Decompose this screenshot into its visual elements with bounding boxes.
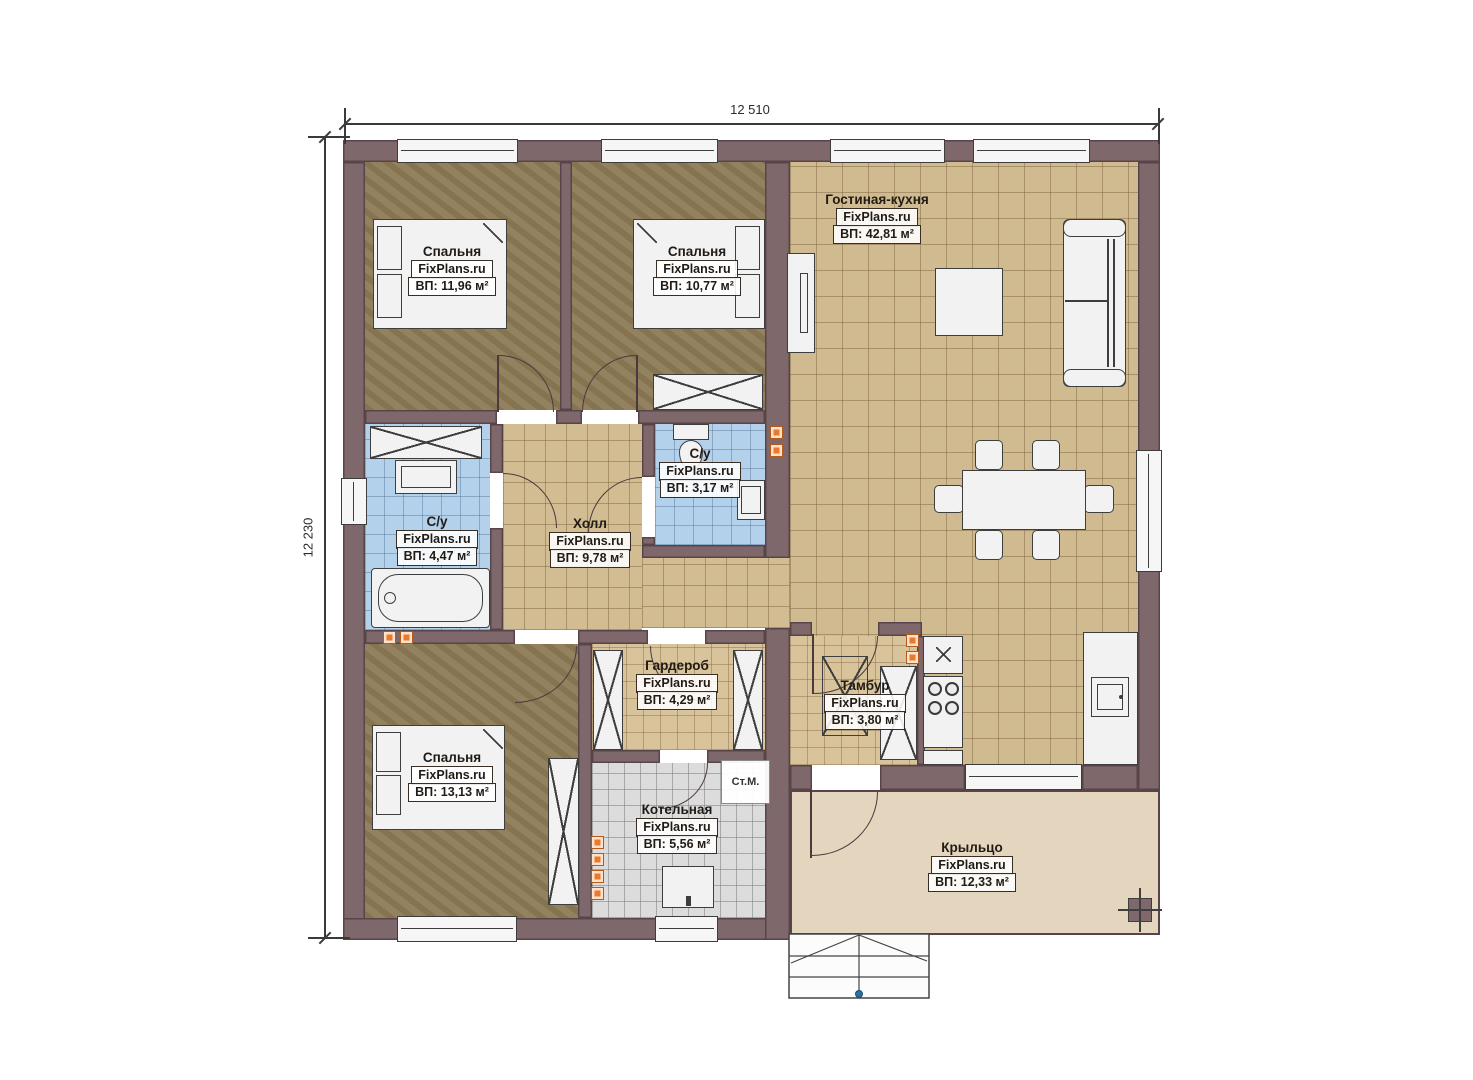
- room-area: ВП: 13,13 м²: [408, 783, 496, 802]
- watermark: FixPlans.ru: [411, 260, 492, 279]
- room-label-wardrobe: Гардероб FixPlans.ru ВП: 4,29 м²: [617, 658, 737, 710]
- washing-machine-text: Ст.М.: [732, 776, 760, 788]
- window: [830, 139, 945, 163]
- wall-segment: [560, 162, 572, 410]
- bed-fold-corner: [637, 223, 657, 243]
- window: [973, 139, 1090, 163]
- room-area: ВП: 3,17 м²: [660, 479, 741, 498]
- vent: [400, 631, 413, 644]
- room-label-bedroom-1: Спальня FixPlans.ru ВП: 11,96 м²: [392, 244, 512, 296]
- stairs-drawing: [788, 933, 932, 1003]
- dimension-extension: [308, 136, 350, 138]
- dimension-line: [324, 137, 326, 938]
- bed-fold-corner: [483, 223, 503, 243]
- dimension-extension: [1158, 108, 1160, 144]
- watermark: FixPlans.ru: [656, 260, 737, 279]
- window: [341, 478, 367, 525]
- boiler-detail: [686, 896, 691, 906]
- washing-machine-label: Ст.М.: [721, 760, 770, 804]
- wall-segment: [705, 630, 765, 644]
- dimension-label-left: 12 230: [301, 498, 316, 578]
- stairs: [788, 933, 932, 1003]
- room-area: ВП: 3,80 м²: [825, 711, 906, 730]
- dimension-line: [345, 123, 1160, 125]
- tv: [800, 273, 808, 333]
- window: [1136, 450, 1162, 572]
- cabinet-x-mark: [936, 647, 951, 662]
- vent: [770, 444, 783, 457]
- stove-burner: [928, 682, 942, 696]
- room-label-tambour: Тамбур FixPlans.ru ВП: 3,80 м²: [805, 678, 925, 730]
- bathroom-sink-basin: [401, 466, 451, 488]
- chair: [1084, 485, 1114, 513]
- kitchen-sink-drain: [1119, 695, 1123, 699]
- watermark: FixPlans.ru: [659, 462, 740, 481]
- wall-segment: [578, 630, 648, 644]
- vent: [906, 634, 919, 647]
- room-label-living-kitchen: Гостиная-кухня FixPlans.ru ВП: 42,81 м²: [817, 192, 937, 244]
- room-area: ВП: 11,96 м²: [408, 277, 495, 296]
- room-name: Спальня: [668, 244, 726, 259]
- chair: [975, 530, 1003, 560]
- vent: [591, 870, 604, 883]
- room-label-boiler-room: Котельная FixPlans.ru ВП: 5,56 м²: [617, 802, 737, 854]
- bed-fold-corner: [483, 729, 503, 749]
- vent: [591, 836, 604, 849]
- sofa-armrest: [1063, 369, 1126, 387]
- watermark: FixPlans.ru: [636, 818, 717, 837]
- room-name: Гардероб: [645, 658, 709, 673]
- watermark: FixPlans.ru: [836, 208, 917, 227]
- sofa-back-line: [1107, 239, 1109, 367]
- room-area: ВП: 10,77 м²: [653, 277, 741, 296]
- wall-segment: [556, 410, 582, 424]
- window: [601, 139, 718, 163]
- closet-xbox: [653, 374, 763, 410]
- window: [965, 764, 1082, 790]
- room-area: ВП: 4,29 м²: [637, 691, 718, 710]
- vent: [591, 853, 604, 866]
- room-name: Котельная: [642, 802, 713, 817]
- sofa-back-line: [1113, 239, 1115, 367]
- vent: [770, 426, 783, 439]
- floor-plan-canvas: Ст.М. Спальня FixPlans.ru ВП: 11,96 м² С…: [0, 0, 1473, 1080]
- room-area: ВП: 5,56 м²: [637, 835, 718, 854]
- wall-segment: [490, 528, 503, 630]
- room-name: Тамбур: [841, 678, 890, 693]
- wall-segment: [790, 622, 812, 636]
- room-label-porch: Крыльцо FixPlans.ru ВП: 12,33 м²: [912, 840, 1032, 892]
- room-name: Спальня: [423, 244, 481, 259]
- vent: [383, 631, 396, 644]
- wall-segment: [1082, 765, 1138, 790]
- room-label-hall: Холл FixPlans.ru ВП: 9,78 м²: [530, 516, 650, 568]
- column-marker-axis: [1139, 888, 1141, 932]
- chair: [975, 440, 1003, 470]
- dimension-label-top: 12 510: [690, 102, 810, 117]
- door-leaf: [636, 355, 638, 412]
- floor-hall-passage: [642, 558, 790, 628]
- room-name: Спальня: [423, 750, 481, 765]
- watermark: FixPlans.ru: [824, 694, 905, 713]
- room-label-bathroom-small: С/у FixPlans.ru ВП: 3,17 м²: [650, 446, 750, 498]
- window: [655, 916, 718, 942]
- wall-segment: [880, 765, 965, 790]
- wall-segment: [765, 162, 790, 558]
- stove-burner: [945, 701, 959, 715]
- wall-segment: [490, 424, 503, 473]
- toilet-tank: [673, 424, 709, 440]
- room-name: Гостиная-кухня: [825, 192, 928, 207]
- window: [397, 916, 517, 942]
- closet-xbox: [548, 758, 579, 905]
- room-label-bedroom-3: Спальня FixPlans.ru ВП: 13,13 м²: [392, 750, 512, 802]
- room-name: С/у: [689, 446, 710, 461]
- window: [397, 139, 518, 163]
- dining-table: [962, 470, 1086, 530]
- watermark: FixPlans.ru: [549, 532, 630, 551]
- closet-xbox: [370, 426, 482, 459]
- kitchen-counter: [923, 750, 963, 765]
- room-area: ВП: 9,78 м²: [550, 549, 631, 568]
- sofa-armrest: [1063, 219, 1126, 237]
- dimension-extension: [344, 108, 346, 144]
- wall-segment: [343, 162, 365, 940]
- vent: [906, 651, 919, 664]
- room-name: Крыльцо: [941, 840, 1002, 855]
- watermark: FixPlans.ru: [411, 766, 492, 785]
- chair: [1032, 440, 1060, 470]
- chair: [1032, 530, 1060, 560]
- coffee-table: [935, 268, 1003, 336]
- wall-segment: [642, 545, 765, 558]
- watermark: FixPlans.ru: [636, 674, 717, 693]
- bathtub-drain: [384, 592, 396, 604]
- wall-segment: [638, 410, 765, 424]
- chair: [934, 485, 964, 513]
- sofa-seat-line: [1065, 300, 1107, 302]
- room-area: ВП: 12,33 м²: [928, 873, 1016, 892]
- room-label-bathroom: С/у FixPlans.ru ВП: 4,47 м²: [387, 514, 487, 566]
- dimension-extension: [308, 937, 350, 939]
- room-name: С/у: [426, 514, 447, 529]
- sofa: [1063, 219, 1126, 387]
- closet-xbox: [733, 650, 763, 750]
- wall-segment: [592, 750, 660, 763]
- room-area: ВП: 42,81 м²: [833, 225, 921, 244]
- room-area: ВП: 4,47 м²: [397, 547, 478, 566]
- vent: [591, 887, 604, 900]
- watermark: FixPlans.ru: [396, 530, 477, 549]
- wall-segment: [578, 644, 592, 918]
- stove-burner: [945, 682, 959, 696]
- watermark: FixPlans.ru: [931, 856, 1012, 875]
- wall-segment: [365, 410, 497, 424]
- wall-segment: [790, 765, 812, 790]
- stove-burner: [928, 701, 942, 715]
- room-name: Холл: [573, 516, 607, 531]
- room-label-bedroom-2: Спальня FixPlans.ru ВП: 10,77 м²: [637, 244, 757, 296]
